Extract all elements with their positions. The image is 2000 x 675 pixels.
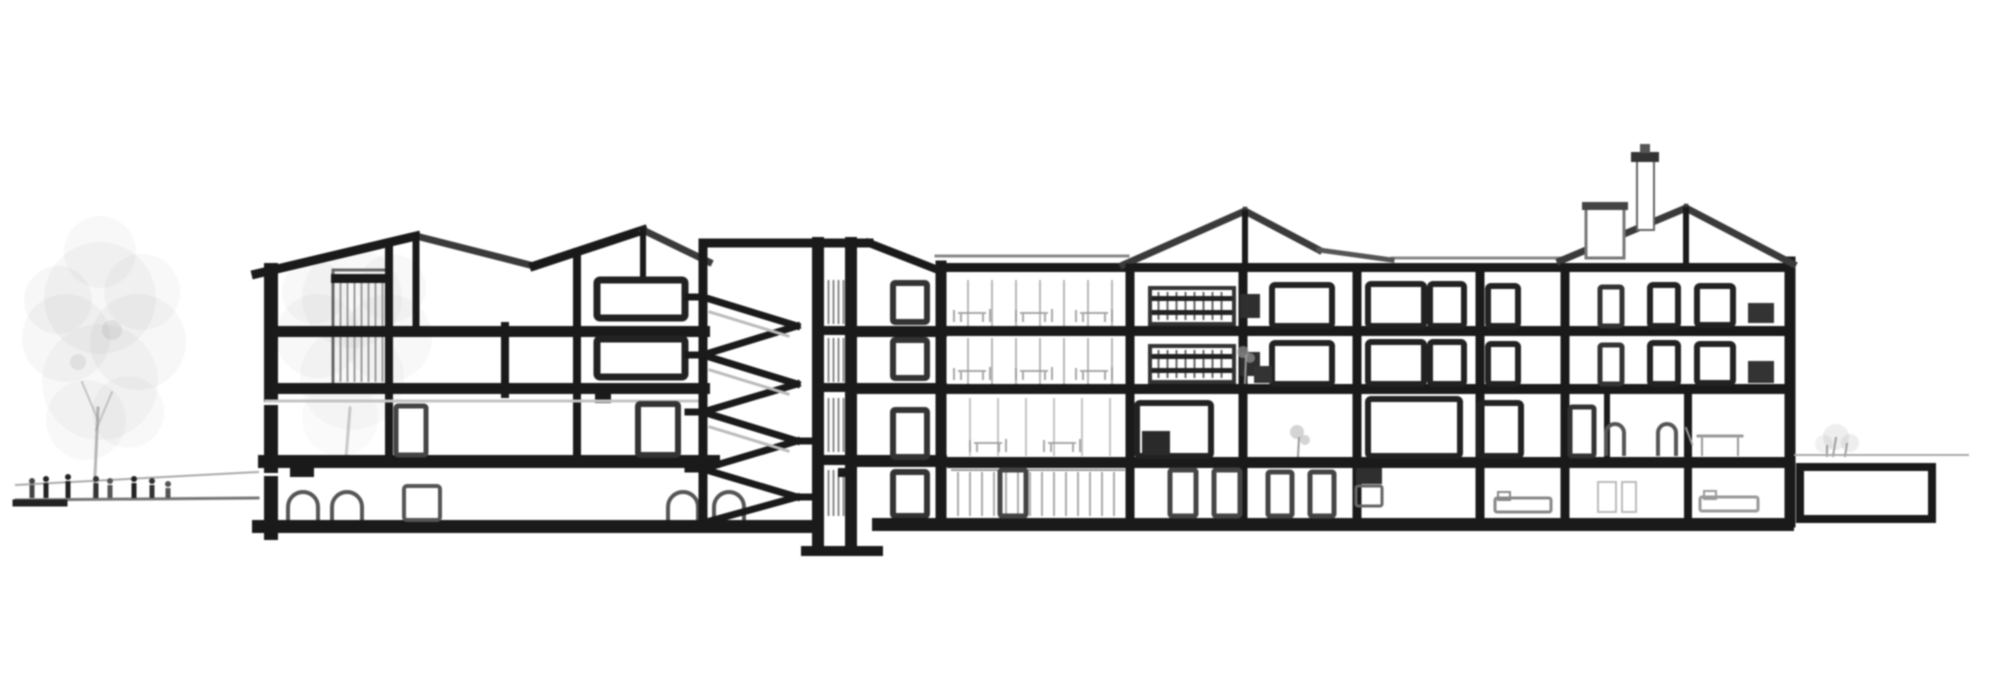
building-section-drawing: Architectural building cross-section dra… bbox=[0, 0, 2000, 675]
person-head bbox=[43, 476, 49, 482]
person bbox=[65, 474, 71, 498]
desk-dark bbox=[1748, 303, 1774, 323]
person bbox=[93, 476, 99, 498]
right-block-slab-ground bbox=[947, 457, 1790, 468]
appliance-dark bbox=[1356, 468, 1382, 484]
bookshelf-shelf bbox=[1152, 296, 1232, 301]
bookshelf-shelf bbox=[1152, 368, 1232, 373]
person-head bbox=[107, 478, 113, 484]
shrub-right bbox=[1815, 435, 1833, 453]
person bbox=[107, 478, 113, 498]
clerestory-window-head bbox=[331, 274, 389, 283]
plant-stem bbox=[1298, 438, 1299, 456]
right-block-slab-basement bbox=[872, 518, 1794, 531]
roof-box bbox=[1586, 206, 1624, 258]
bookshelf-shelf bbox=[1152, 310, 1232, 315]
basement-annex bbox=[1800, 467, 1932, 519]
person bbox=[29, 478, 35, 498]
desk-dark bbox=[1748, 361, 1774, 383]
tree-left-speckle bbox=[102, 320, 122, 340]
chimney-body bbox=[1637, 160, 1654, 230]
elevator-lintel bbox=[812, 383, 858, 392]
person bbox=[149, 478, 155, 498]
tree-left-speckle bbox=[70, 354, 86, 370]
left-block-slab-level3 bbox=[264, 326, 710, 337]
roof-box-cap bbox=[1582, 202, 1628, 210]
person-head bbox=[29, 478, 35, 484]
corridor-slab bbox=[857, 383, 947, 394]
elevator-lintel bbox=[812, 455, 858, 465]
person-head bbox=[65, 474, 71, 480]
shrub-right bbox=[1841, 434, 1859, 452]
chimney-cap bbox=[1631, 152, 1659, 162]
plant-sketch bbox=[1300, 435, 1310, 445]
cabinet bbox=[1240, 294, 1260, 318]
person-head bbox=[131, 476, 137, 482]
corridor-footing bbox=[838, 468, 854, 477]
elevator-lintel bbox=[812, 326, 858, 335]
person-head bbox=[149, 478, 155, 484]
person bbox=[43, 476, 49, 498]
plant-stem bbox=[1245, 356, 1246, 383]
left-block-footing bbox=[290, 468, 314, 477]
person bbox=[131, 476, 137, 498]
tree-left-canopy bbox=[64, 216, 136, 288]
desk-dark bbox=[1142, 431, 1170, 455]
person bbox=[165, 481, 171, 498]
chimney-tip bbox=[1640, 144, 1650, 153]
armchair-dark bbox=[1254, 366, 1272, 383]
corridor-slab bbox=[857, 326, 947, 337]
person-head bbox=[165, 481, 171, 487]
person-head bbox=[93, 476, 99, 482]
left-block-slab-basement bbox=[252, 520, 816, 533]
bookshelf-shelf bbox=[1152, 354, 1232, 359]
right-block-parapet bbox=[936, 263, 1794, 272]
architectural-section-canvas: Architectural building cross-section dra… bbox=[0, 0, 2000, 675]
left-block-slab-level2 bbox=[264, 383, 710, 394]
